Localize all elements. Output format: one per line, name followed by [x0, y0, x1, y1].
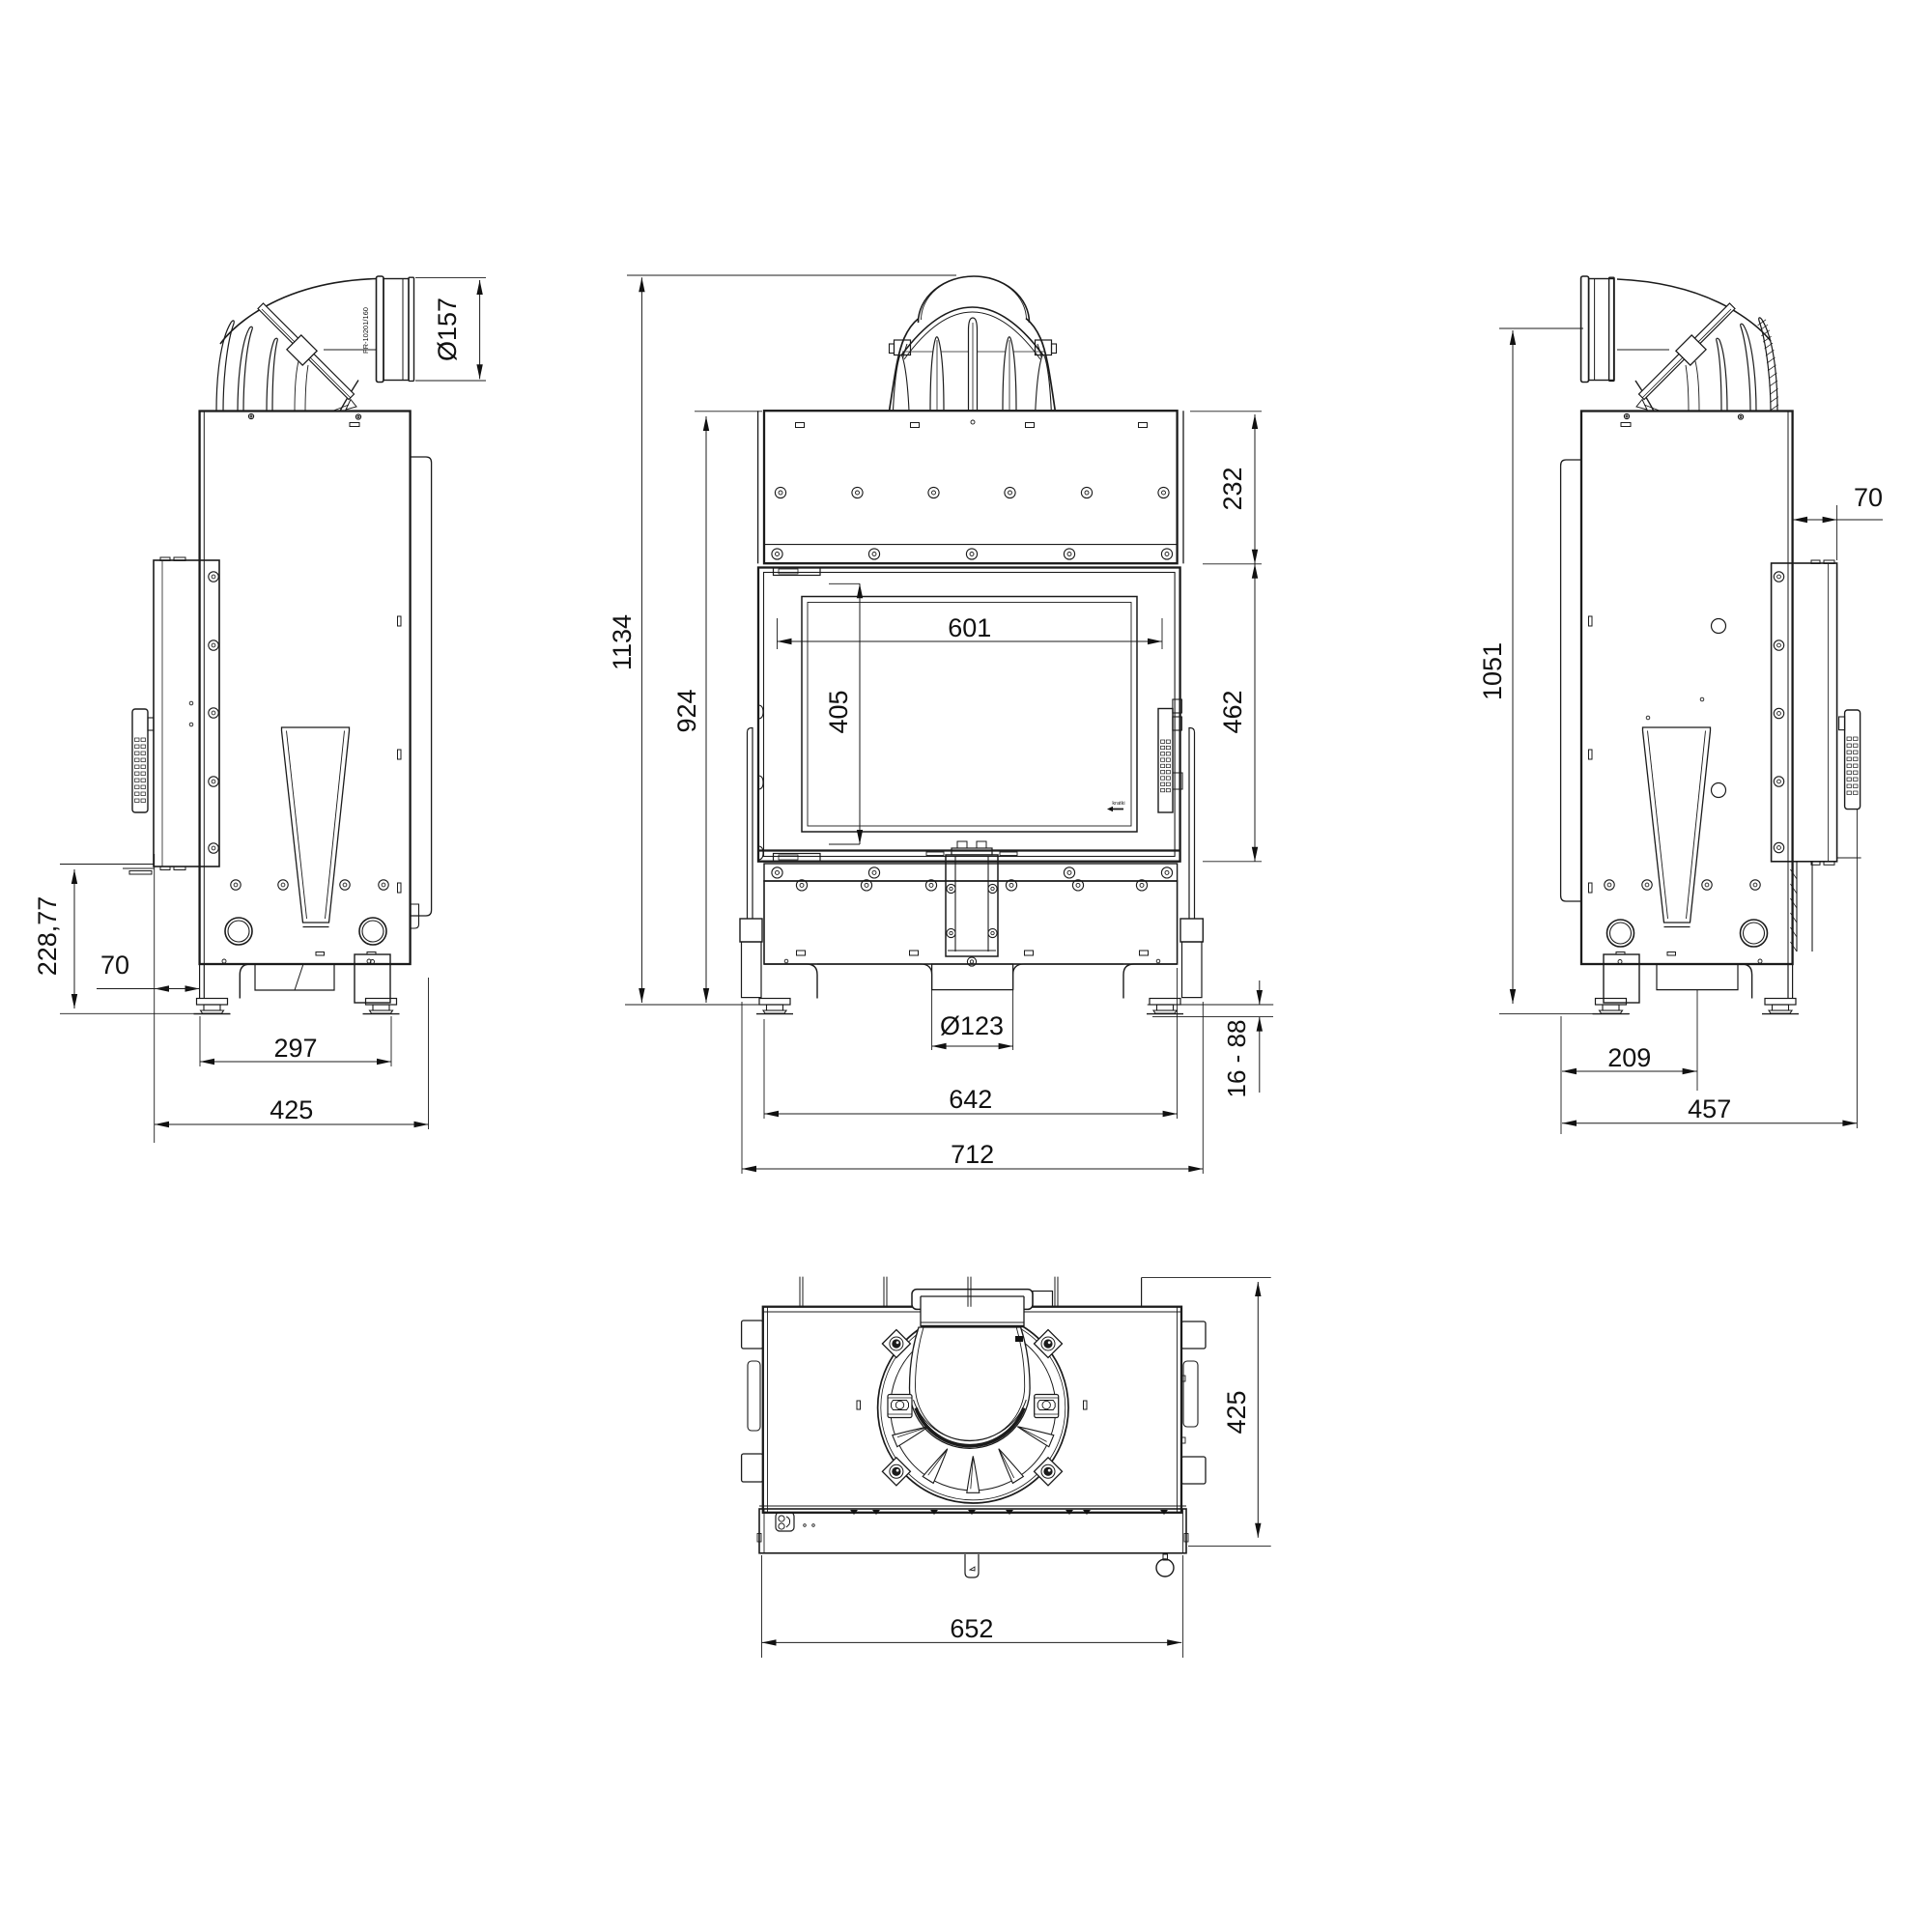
svg-text:70: 70 [100, 951, 129, 980]
svg-text:642: 642 [949, 1085, 992, 1114]
svg-text:425: 425 [1222, 1390, 1251, 1434]
svg-text:Ø123: Ø123 [940, 1011, 1004, 1040]
svg-text:Ø157: Ø157 [433, 298, 462, 361]
svg-text:70: 70 [1854, 483, 1883, 512]
svg-text:297: 297 [273, 1034, 317, 1063]
svg-text:712: 712 [951, 1140, 994, 1169]
svg-text:228,77: 228,77 [33, 896, 62, 977]
svg-text:425: 425 [270, 1095, 313, 1124]
svg-text:FR-10201/160: FR-10201/160 [361, 307, 370, 354]
svg-text:16 - 88: 16 - 88 [1222, 1020, 1251, 1098]
svg-text:652: 652 [950, 1614, 993, 1643]
svg-text:462: 462 [1218, 690, 1247, 733]
svg-text:405: 405 [824, 690, 853, 733]
svg-text:457: 457 [1688, 1094, 1731, 1123]
svg-text:1134: 1134 [608, 614, 637, 670]
svg-text:kratki: kratki [1112, 801, 1124, 807]
svg-text:232: 232 [1218, 467, 1247, 510]
svg-text:601: 601 [948, 613, 991, 642]
svg-text:209: 209 [1607, 1043, 1651, 1072]
svg-text:1051: 1051 [1478, 642, 1507, 700]
svg-text:924: 924 [672, 689, 701, 732]
